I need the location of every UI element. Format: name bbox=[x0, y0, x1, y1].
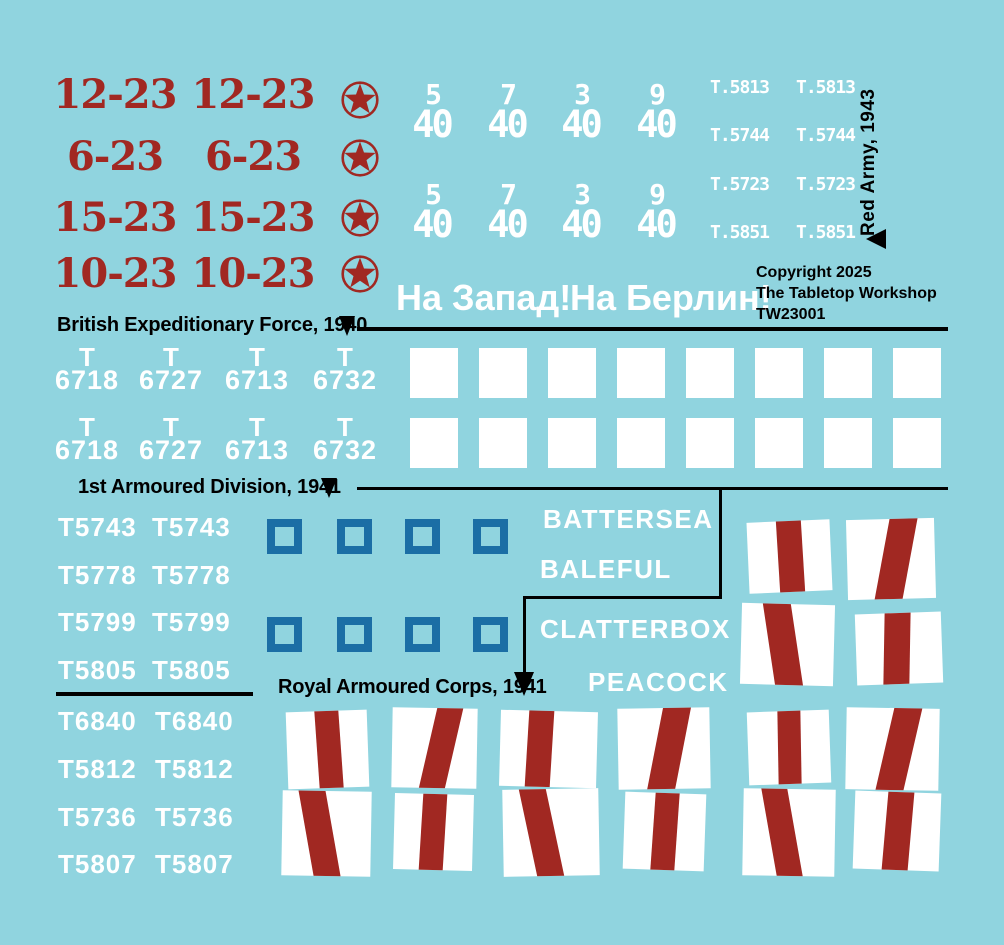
tank-serial: T5743 bbox=[58, 514, 137, 540]
serial-number: 6713 bbox=[212, 368, 302, 393]
white-filled-square bbox=[479, 418, 527, 468]
fraction-marking: 340 bbox=[552, 82, 612, 141]
bef-serial: T6727 bbox=[126, 346, 216, 393]
section-divider-line bbox=[56, 692, 253, 696]
white-filled-square bbox=[755, 418, 803, 468]
flag-stripe bbox=[650, 792, 681, 872]
fraction-denominator: 40 bbox=[400, 208, 463, 241]
white-filled-square bbox=[755, 348, 803, 398]
red-serial: 15-23 bbox=[50, 197, 180, 239]
star-in-circle-icon bbox=[340, 138, 380, 178]
tank-serial: T6840 bbox=[155, 708, 234, 734]
white-filled-square bbox=[824, 418, 872, 468]
blue-outline-square bbox=[473, 519, 508, 554]
tank-serial: T5736 bbox=[58, 804, 137, 830]
slogan-na-berlin: На Берлин! bbox=[570, 279, 772, 317]
section-rule-armoured bbox=[357, 487, 948, 490]
fraction-denominator: 40 bbox=[549, 208, 612, 241]
bef-serial: T6718 bbox=[42, 416, 132, 463]
blue-outline-square bbox=[337, 519, 372, 554]
section-rule-bef bbox=[357, 327, 948, 331]
slogan-na-zapad: На Запад! bbox=[396, 279, 571, 317]
connector-line bbox=[523, 596, 722, 599]
stencil-serial: T.5813 bbox=[710, 79, 769, 97]
blue-outline-square bbox=[405, 617, 440, 652]
flag-stripe bbox=[884, 612, 911, 686]
stencil-serial: T.5813 bbox=[796, 79, 855, 97]
tank-serial: T5812 bbox=[155, 756, 234, 782]
white-flag-red-stripe bbox=[855, 612, 943, 686]
tank-serial: T5807 bbox=[155, 851, 234, 877]
section-title-armoured: 1st Armoured Division, 1941 bbox=[78, 476, 341, 498]
white-flag-red-stripe bbox=[742, 788, 836, 877]
white-filled-square bbox=[686, 348, 734, 398]
serial-number: 6713 bbox=[212, 438, 302, 463]
star-in-circle-icon bbox=[340, 254, 380, 294]
section-title-rac: Royal Armoured Corps, 1941 bbox=[278, 676, 547, 698]
tank-serial: T5799 bbox=[58, 609, 137, 635]
tank-serial: T5736 bbox=[155, 804, 234, 830]
bef-serial: T6713 bbox=[212, 416, 302, 463]
flag-stripe bbox=[314, 710, 345, 790]
fraction-marking: 340 bbox=[552, 182, 612, 241]
white-filled-square bbox=[410, 348, 458, 398]
tank-serial: T5805 bbox=[58, 657, 137, 683]
tank-serial: T5807 bbox=[58, 851, 137, 877]
blue-outline-square bbox=[473, 617, 508, 652]
flag-stripe bbox=[760, 788, 804, 877]
white-flag-red-stripe bbox=[617, 707, 710, 790]
flag-stripe bbox=[777, 710, 801, 786]
flag-stripe bbox=[874, 518, 919, 600]
white-filled-square bbox=[617, 348, 665, 398]
stencil-serial: T.5723 bbox=[796, 176, 855, 194]
copyright-line: The Tabletop Workshop bbox=[756, 283, 937, 304]
bef-serial: T6713 bbox=[212, 346, 302, 393]
white-flag-red-stripe bbox=[281, 790, 371, 877]
bef-serial: T6732 bbox=[300, 416, 390, 463]
bef-serial: T6732 bbox=[300, 346, 390, 393]
fraction-denominator: 40 bbox=[475, 108, 538, 141]
serial-number: 6718 bbox=[42, 438, 132, 463]
flag-stripe bbox=[646, 707, 692, 790]
red-serial: 6-23 bbox=[188, 136, 318, 178]
red-serial: 15-23 bbox=[188, 197, 318, 239]
tank-serial: T5778 bbox=[152, 562, 231, 588]
white-filled-square bbox=[893, 418, 941, 468]
flag-stripe bbox=[874, 707, 924, 791]
fraction-marking: 540 bbox=[403, 182, 463, 241]
white-flag-red-stripe bbox=[746, 519, 832, 594]
fraction-denominator: 40 bbox=[400, 108, 463, 141]
white-filled-square bbox=[617, 418, 665, 468]
white-filled-square bbox=[824, 348, 872, 398]
flag-stripe bbox=[417, 707, 464, 788]
red-army-section-label: Red Army, 1943 bbox=[858, 86, 880, 236]
white-filled-square bbox=[548, 348, 596, 398]
white-filled-square bbox=[686, 418, 734, 468]
bef-serial: T6718 bbox=[42, 346, 132, 393]
tank-serial: T5812 bbox=[58, 756, 137, 782]
red-serial: 6-23 bbox=[50, 136, 180, 178]
red-serial: 10-23 bbox=[50, 253, 180, 295]
triangle-down-icon bbox=[339, 316, 355, 336]
white-flag-red-stripe bbox=[853, 791, 942, 872]
flag-stripe bbox=[524, 710, 555, 789]
fraction-marking: 740 bbox=[478, 182, 538, 241]
star-in-circle-icon bbox=[340, 198, 380, 238]
stencil-serial: T.5723 bbox=[710, 176, 769, 194]
copyright-line: Copyright 2025 bbox=[756, 262, 937, 283]
white-filled-square bbox=[410, 418, 458, 468]
white-flag-red-stripe bbox=[502, 788, 600, 877]
tank-name: BALEFUL bbox=[540, 556, 672, 582]
triangle-left-icon bbox=[866, 229, 886, 249]
white-filled-square bbox=[548, 418, 596, 468]
white-flag-red-stripe bbox=[393, 793, 474, 871]
connector-line bbox=[719, 487, 722, 599]
tank-name: BATTERSEA bbox=[543, 506, 713, 532]
tank-serial: T6840 bbox=[58, 708, 137, 734]
white-flag-red-stripe bbox=[623, 792, 707, 872]
white-flag-red-stripe bbox=[391, 707, 477, 788]
white-flag-red-stripe bbox=[747, 710, 831, 786]
stencil-serial: T.5744 bbox=[710, 127, 769, 145]
white-filled-square bbox=[479, 348, 527, 398]
stencil-serial: T.5744 bbox=[796, 127, 855, 145]
white-filled-square bbox=[893, 348, 941, 398]
white-flag-red-stripe bbox=[846, 518, 936, 600]
fraction-denominator: 40 bbox=[624, 108, 687, 141]
flag-stripe bbox=[762, 603, 804, 686]
triangle-down-icon bbox=[514, 672, 534, 696]
fraction-marking: 540 bbox=[403, 82, 463, 141]
bef-serial: T6727 bbox=[126, 416, 216, 463]
white-flag-red-stripe bbox=[845, 707, 939, 791]
blue-outline-square bbox=[405, 519, 440, 554]
red-serial: 10-23 bbox=[188, 253, 318, 295]
blue-outline-square bbox=[337, 617, 372, 652]
blue-outline-square bbox=[267, 617, 302, 652]
section-title-bef: British Expeditionary Force, 1940 bbox=[57, 314, 367, 336]
fraction-denominator: 40 bbox=[624, 208, 687, 241]
fraction-marking: 940 bbox=[627, 182, 687, 241]
tank-name: PEACOCK bbox=[588, 669, 729, 695]
white-flag-red-stripe bbox=[286, 710, 370, 790]
tank-serial: T5743 bbox=[152, 514, 231, 540]
serial-number: 6727 bbox=[126, 438, 216, 463]
white-flag-red-stripe bbox=[499, 710, 598, 789]
fraction-denominator: 40 bbox=[475, 208, 538, 241]
connector-line bbox=[523, 596, 526, 674]
serial-number: 6718 bbox=[42, 368, 132, 393]
flag-stripe bbox=[297, 790, 341, 877]
tank-serial: T5805 bbox=[152, 657, 231, 683]
fraction-marking: 740 bbox=[478, 82, 538, 141]
flag-stripe bbox=[775, 519, 805, 594]
flag-stripe bbox=[418, 793, 447, 871]
red-serial: 12-23 bbox=[50, 74, 180, 116]
fraction-marking: 940 bbox=[627, 82, 687, 141]
triangle-down-icon bbox=[321, 478, 337, 498]
fraction-denominator: 40 bbox=[549, 108, 612, 141]
flag-stripe bbox=[881, 791, 915, 872]
stencil-serial: T.5851 bbox=[796, 224, 855, 242]
serial-number: 6732 bbox=[300, 368, 390, 393]
star-in-circle-icon bbox=[340, 80, 380, 120]
serial-number: 6732 bbox=[300, 438, 390, 463]
tank-serial: T5799 bbox=[152, 609, 231, 635]
stencil-serial: T.5851 bbox=[710, 224, 769, 242]
tank-name: CLATTERBOX bbox=[540, 616, 731, 642]
blue-outline-square bbox=[267, 519, 302, 554]
white-flag-red-stripe bbox=[740, 603, 835, 686]
flag-stripe bbox=[517, 788, 565, 877]
copyright-line: TW23001 bbox=[756, 304, 937, 325]
tank-serial: T5778 bbox=[58, 562, 137, 588]
serial-number: 6727 bbox=[126, 368, 216, 393]
red-serial: 12-23 bbox=[188, 74, 318, 116]
copyright-block: Copyright 2025 The Tabletop Workshop TW2… bbox=[756, 262, 937, 325]
decal-sheet: 12-23 12-23 6-23 6-23 15-23 15-23 10-23 … bbox=[0, 0, 1004, 945]
